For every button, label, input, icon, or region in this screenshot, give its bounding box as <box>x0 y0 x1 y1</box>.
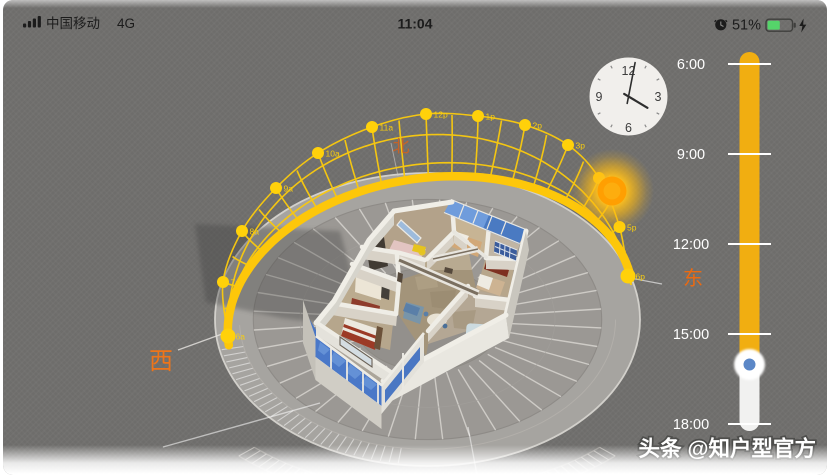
svg-text:6p: 6p <box>636 272 646 282</box>
svg-text:3: 3 <box>655 90 662 104</box>
svg-text:西: 西 <box>149 348 173 375</box>
svg-text:51%: 51% <box>732 18 761 34</box>
svg-text:11:04: 11:04 <box>397 16 432 32</box>
svg-text:8a: 8a <box>250 227 260 237</box>
svg-text:9a: 9a <box>284 184 294 194</box>
svg-text:东: 东 <box>683 267 703 290</box>
svg-text:7a: 7a <box>231 278 241 288</box>
svg-text:10a: 10a <box>326 149 340 159</box>
svg-text:6: 6 <box>625 121 632 135</box>
svg-text:6a: 6a <box>236 332 246 342</box>
svg-text:4G: 4G <box>117 16 135 31</box>
svg-text:9:00: 9:00 <box>677 147 705 163</box>
svg-text:中国移动: 中国移动 <box>46 16 100 31</box>
svg-text:3p: 3p <box>576 141 586 151</box>
svg-text:6:00: 6:00 <box>677 57 705 73</box>
svg-text:2p: 2p <box>533 121 543 131</box>
svg-text:9: 9 <box>596 90 603 104</box>
svg-text:1p: 1p <box>486 112 496 122</box>
svg-text:12:00: 12:00 <box>673 237 709 253</box>
svg-text:北: 北 <box>393 137 410 156</box>
svg-text:12p: 12p <box>434 110 448 120</box>
svg-text:15:00: 15:00 <box>673 327 709 343</box>
svg-text:18:00: 18:00 <box>673 417 709 433</box>
svg-text:11a: 11a <box>380 123 394 133</box>
